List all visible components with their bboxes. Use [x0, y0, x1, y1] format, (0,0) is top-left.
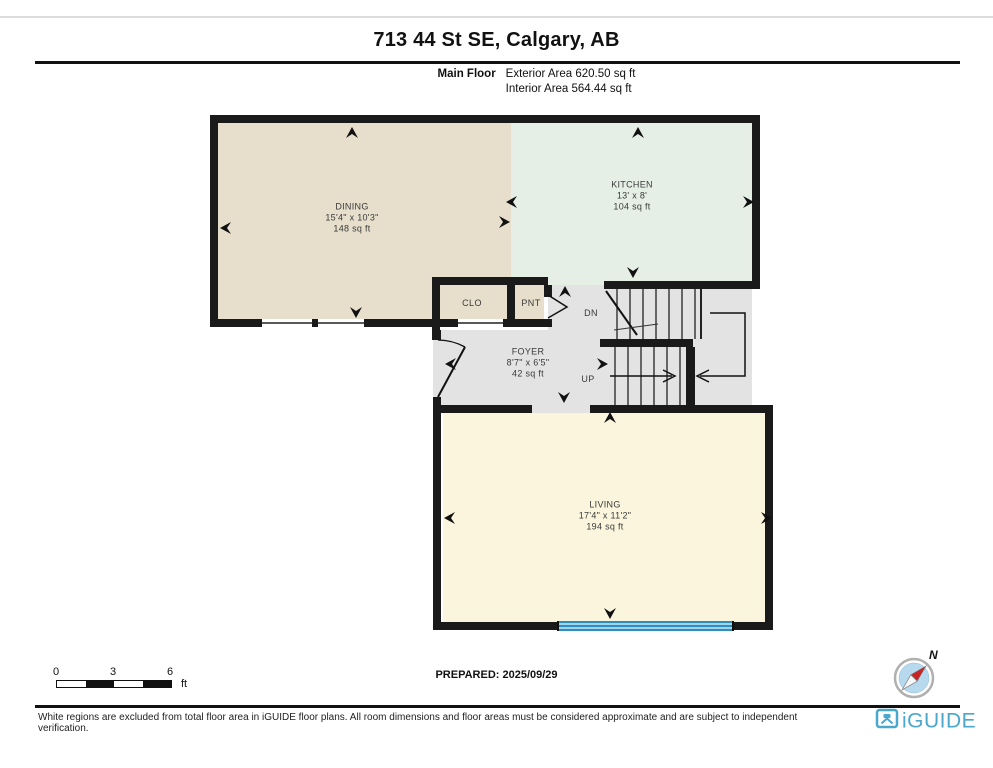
pantry-label: PNT — [521, 298, 540, 308]
stair-break-line — [606, 291, 658, 335]
foyer-label: FOYER8'7" x 6'5"42 sq ft — [507, 347, 550, 380]
footer-disclaimer: White regions are excluded from total fl… — [38, 712, 838, 734]
scale-bar-segments — [56, 680, 172, 688]
plan-annotations — [0, 0, 993, 768]
living-label: LIVING17'4" x 11'2"194 sq ft — [579, 500, 632, 533]
dining-label: DINING15'4" x 10'3"148 sq ft — [325, 202, 378, 235]
prepared-date: PREPARED: 2025/09/29 — [0, 669, 993, 681]
measurement-arrows — [220, 127, 772, 619]
footer-divider — [35, 705, 960, 708]
stairs-down-label: DN — [584, 308, 598, 318]
compass: N — [886, 645, 948, 707]
pantry-door — [548, 295, 567, 318]
kitchen-label: KITCHEN13' x 8'104 sq ft — [611, 180, 653, 213]
iguide-logo-icon — [877, 710, 897, 727]
brand-logo: iGUIDE — [874, 706, 984, 734]
brand-wordmark: iGUIDE — [902, 710, 976, 733]
compass-north-label: N — [929, 648, 938, 662]
entry-door — [438, 340, 465, 397]
closet-label: CLO — [462, 298, 482, 308]
stairs-up-label: UP — [581, 374, 594, 384]
stair-treads-down — [617, 289, 701, 339]
